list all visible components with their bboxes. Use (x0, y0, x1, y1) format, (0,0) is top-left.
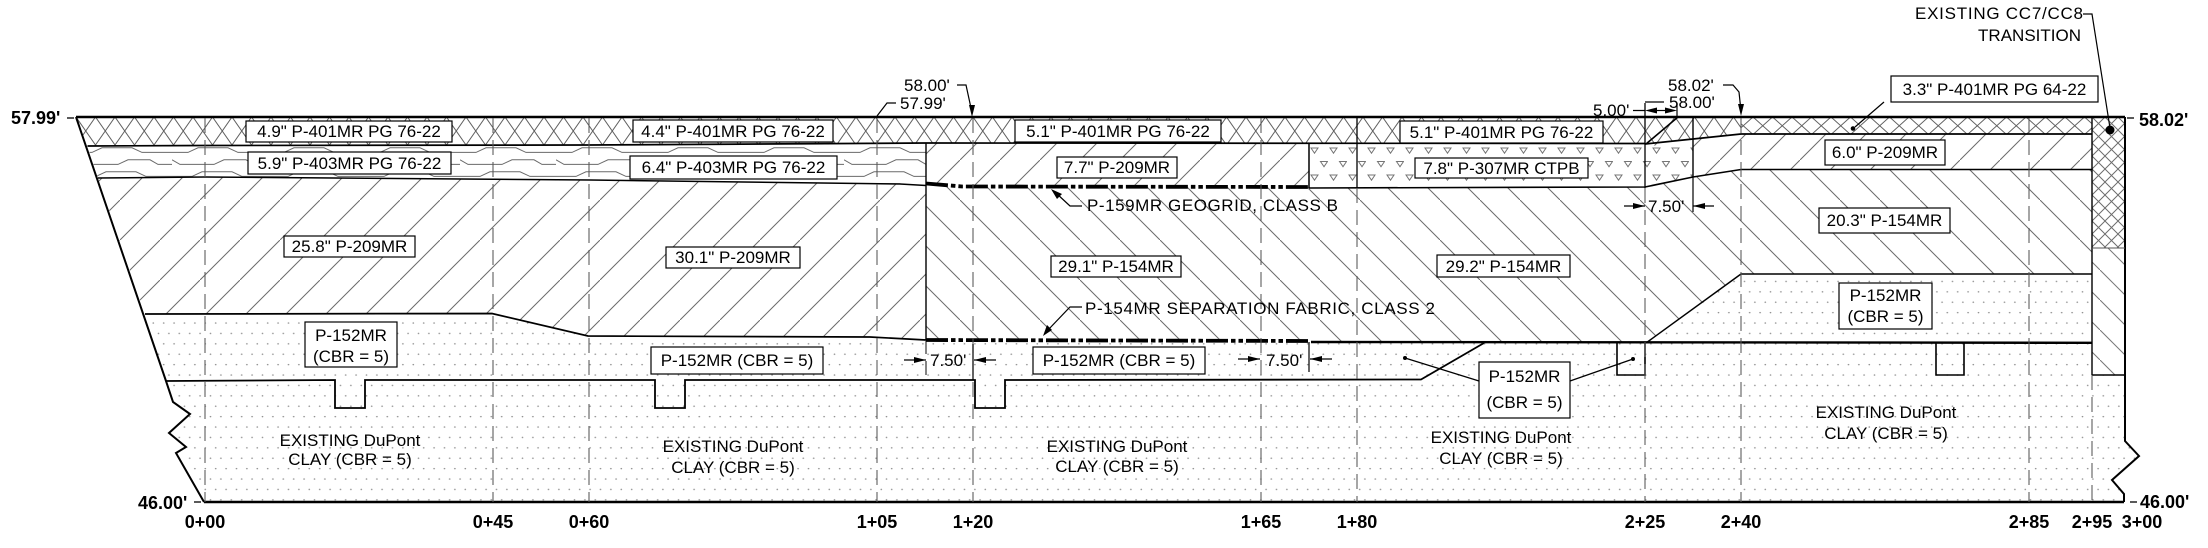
svg-text:P-152MR (CBR = 5): P-152MR (CBR = 5) (1043, 351, 1196, 370)
svg-text:4.4" P-401MR PG 76-22: 4.4" P-401MR PG 76-22 (641, 122, 825, 141)
svg-text:7.50': 7.50' (1266, 351, 1302, 370)
svg-text:TRANSITION: TRANSITION (1978, 26, 2081, 45)
svg-text:EXISTING DuPont: EXISTING DuPont (280, 431, 421, 450)
svg-text:EXISTING DuPont: EXISTING DuPont (1047, 437, 1188, 456)
svg-text:0+00: 0+00 (185, 512, 226, 532)
svg-text:0+60: 0+60 (569, 512, 610, 532)
svg-text:29.2" P-154MR: 29.2" P-154MR (1446, 257, 1562, 276)
svg-text:58.00': 58.00' (904, 76, 950, 95)
svg-text:5.1" P-401MR PG 76-22: 5.1" P-401MR PG 76-22 (1410, 123, 1594, 142)
svg-text:57.99': 57.99' (900, 94, 946, 113)
svg-text:7.7" P-209MR: 7.7" P-209MR (1064, 158, 1170, 177)
svg-text:2+25: 2+25 (1625, 512, 1666, 532)
svg-text:1+20: 1+20 (953, 512, 994, 532)
svg-text:7.50': 7.50' (930, 351, 966, 370)
svg-text:5.9" P-403MR PG 76-22: 5.9" P-403MR PG 76-22 (258, 154, 442, 173)
svg-text:7.8" P-307MR CTPB: 7.8" P-307MR CTPB (1423, 159, 1579, 178)
svg-text:1+05: 1+05 (857, 512, 898, 532)
svg-text:P-152MR (CBR = 5): P-152MR (CBR = 5) (661, 351, 814, 370)
svg-text:CLAY (CBR = 5): CLAY (CBR = 5) (671, 458, 795, 477)
svg-text:P-152MR: P-152MR (1850, 286, 1922, 305)
svg-text:0+45: 0+45 (473, 512, 514, 532)
svg-text:CLAY (CBR = 5): CLAY (CBR = 5) (1439, 449, 1563, 468)
svg-text:58.02': 58.02' (2139, 110, 2188, 130)
svg-text:57.99': 57.99' (11, 108, 60, 128)
svg-text:20.3" P-154MR: 20.3" P-154MR (1827, 211, 1943, 230)
svg-text:4.9" P-401MR PG 76-22: 4.9" P-401MR PG 76-22 (257, 122, 441, 141)
svg-text:30.1" P-209MR: 30.1" P-209MR (675, 248, 791, 267)
svg-text:(CBR = 5): (CBR = 5) (1486, 393, 1562, 412)
svg-text:P-159MR GEOGRID, CLASS B: P-159MR GEOGRID, CLASS B (1087, 196, 1338, 215)
svg-text:29.1" P-154MR: 29.1" P-154MR (1058, 257, 1174, 276)
svg-text:EXISTING DuPont: EXISTING DuPont (1816, 403, 1957, 422)
svg-text:3+00: 3+00 (2122, 512, 2163, 532)
svg-text:2+85: 2+85 (2009, 512, 2050, 532)
svg-text:46.00': 46.00' (138, 493, 187, 513)
svg-text:25.8" P-209MR: 25.8" P-209MR (292, 237, 408, 256)
svg-text:58.00': 58.00' (1669, 93, 1715, 112)
svg-text:EXISTING DuPont: EXISTING DuPont (663, 437, 804, 456)
svg-text:46.00': 46.00' (2140, 492, 2189, 512)
svg-text:EXISTING DuPont: EXISTING DuPont (1431, 428, 1572, 447)
svg-text:(CBR = 5): (CBR = 5) (1847, 307, 1923, 326)
svg-text:CLAY (CBR = 5): CLAY (CBR = 5) (1055, 457, 1179, 476)
svg-text:7.50': 7.50' (1648, 197, 1684, 216)
svg-text:EXISTING CC7/CC8: EXISTING CC7/CC8 (1915, 4, 2083, 23)
svg-text:1+65: 1+65 (1241, 512, 1282, 532)
svg-text:5.00': 5.00' (1593, 101, 1629, 120)
svg-text:CLAY (CBR = 5): CLAY (CBR = 5) (1824, 424, 1948, 443)
svg-text:(CBR = 5): (CBR = 5) (313, 347, 389, 366)
svg-text:P-152MR: P-152MR (1489, 367, 1561, 386)
svg-text:6.0" P-209MR: 6.0" P-209MR (1832, 143, 1938, 162)
svg-text:1+80: 1+80 (1337, 512, 1378, 532)
svg-text:P-152MR: P-152MR (315, 326, 387, 345)
svg-text:6.4" P-403MR PG 76-22: 6.4" P-403MR PG 76-22 (642, 158, 826, 177)
svg-text:P-154MR SEPARATION FABRIC, CLA: P-154MR SEPARATION FABRIC, CLASS 2 (1085, 299, 1435, 318)
svg-text:5.1" P-401MR PG 76-22: 5.1" P-401MR PG 76-22 (1026, 122, 1210, 141)
svg-text:2+40: 2+40 (1721, 512, 1762, 532)
svg-text:3.3" P-401MR PG 64-22: 3.3" P-401MR PG 64-22 (1903, 80, 2087, 99)
svg-text:2+95: 2+95 (2072, 512, 2113, 532)
svg-text:CLAY (CBR = 5): CLAY (CBR = 5) (288, 450, 412, 469)
